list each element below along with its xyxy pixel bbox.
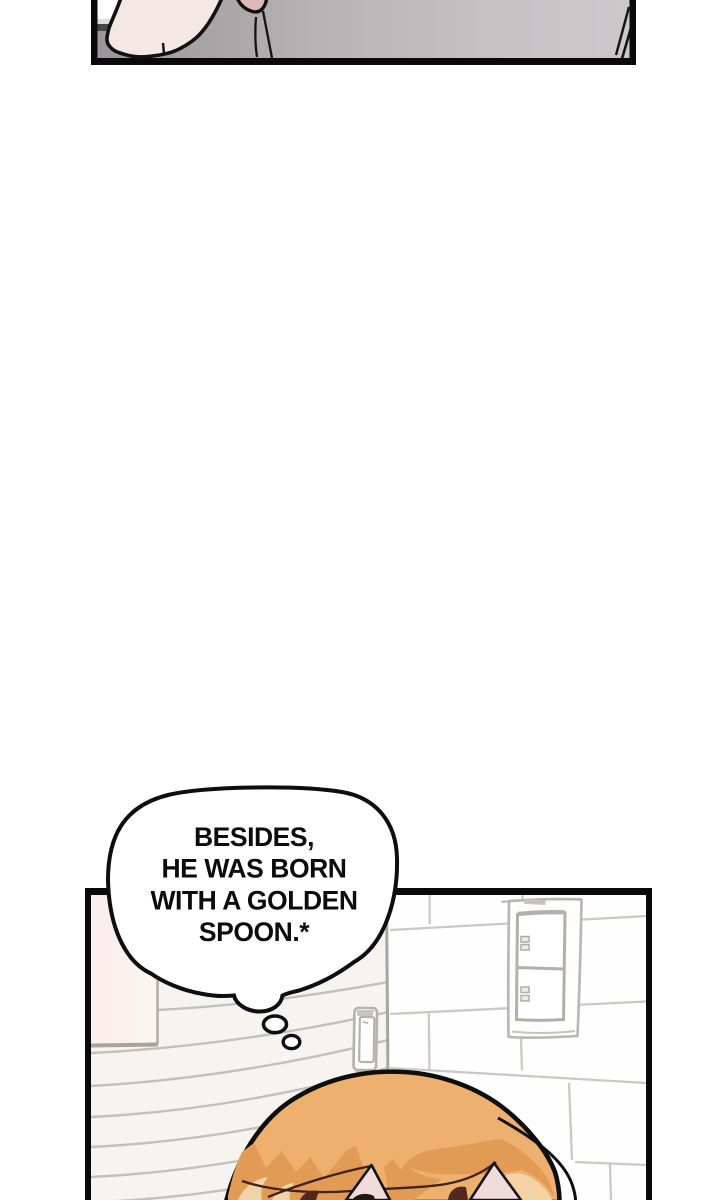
svg-text:SPOON.*: SPOON.* [199,917,310,947]
svg-text:HE WAS BORN: HE WAS BORN [162,854,347,884]
svg-text:BESIDES,: BESIDES, [194,822,314,852]
svg-text:WITH A GOLDEN: WITH A GOLDEN [150,886,357,916]
